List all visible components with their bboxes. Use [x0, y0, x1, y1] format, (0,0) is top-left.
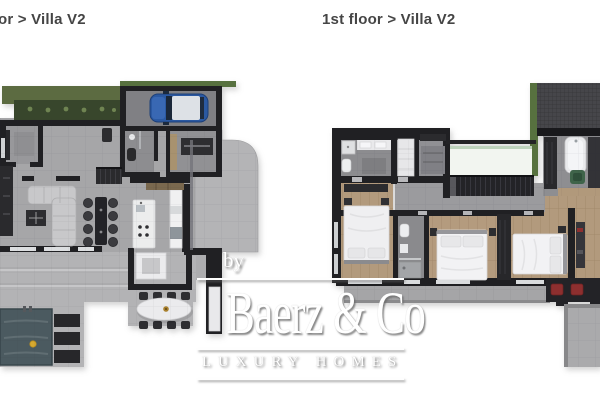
floorplan-sheet: or > Villa V2 1st floor > Villa V2 by Ba… — [0, 0, 600, 400]
car-windshield — [166, 96, 172, 120]
watermark-rule-bottom — [197, 378, 404, 380]
red-stool — [551, 284, 563, 295]
bed-3 — [513, 234, 567, 274]
car-hood — [152, 97, 165, 119]
study — [576, 222, 585, 268]
tile-overlay — [0, 118, 195, 253]
bed-2 — [437, 230, 487, 280]
tile-overlay-3 — [195, 130, 258, 252]
balcony-bench — [546, 278, 600, 308]
watermark-prefix: by — [223, 248, 244, 273]
watermark-brand: Baerz & Co — [226, 283, 375, 343]
tile-overlay-wing — [543, 136, 600, 196]
wardrobe-2 — [497, 214, 511, 280]
ground-floor-title: or > Villa V2 — [0, 11, 86, 28]
tall-cabinet — [209, 287, 220, 331]
car-rear-window — [200, 97, 204, 119]
ground-floor-plan — [0, 81, 258, 367]
tile-overlay-baths — [341, 140, 447, 178]
garden-planter — [2, 86, 120, 120]
sink-2 — [400, 244, 408, 253]
bed-1 — [344, 206, 389, 264]
car — [150, 91, 208, 125]
first-floor-title: 1st floor > Villa V2 — [322, 11, 455, 28]
watermark-rule-mid — [197, 348, 404, 350]
tile-overlay-2 — [0, 252, 196, 367]
shower-2 — [399, 262, 421, 278]
watermark-tagline: LUXURY HOMES — [197, 354, 404, 371]
roof-terrace — [564, 304, 600, 367]
void-opening — [450, 146, 532, 176]
tile-overlay-hall — [395, 183, 545, 212]
wardrobe-1 — [344, 184, 388, 192]
car-roof — [172, 96, 200, 120]
red-stool-2 — [571, 284, 583, 295]
roof — [537, 83, 600, 136]
toilet-2 — [400, 224, 409, 237]
